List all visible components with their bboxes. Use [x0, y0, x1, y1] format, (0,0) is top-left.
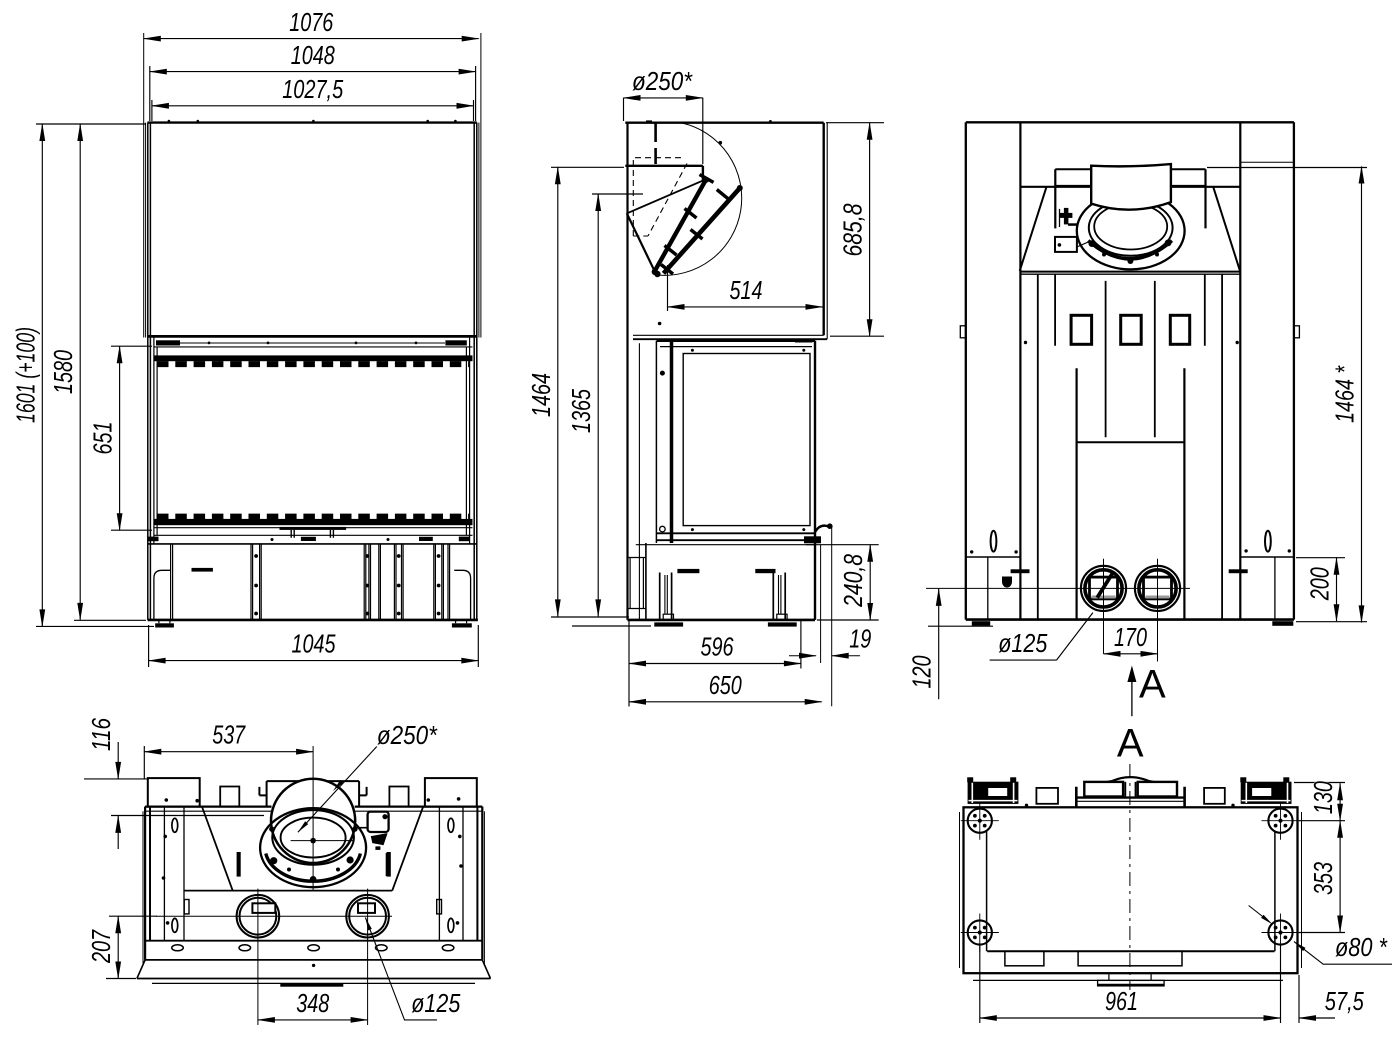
svg-text:116: 116: [86, 718, 116, 751]
svg-text:1464 *: 1464 *: [1330, 365, 1360, 423]
svg-text:514: 514: [730, 275, 763, 305]
svg-text:240,8: 240,8: [838, 553, 868, 607]
svg-text:200: 200: [1305, 567, 1335, 601]
svg-text:ø80 *: ø80 *: [1335, 932, 1388, 962]
svg-text:961: 961: [1105, 986, 1138, 1016]
svg-text:ø250*: ø250*: [377, 720, 438, 750]
svg-text:ø125: ø125: [411, 988, 460, 1018]
svg-text:1045: 1045: [292, 629, 336, 659]
svg-text:57,5: 57,5: [1325, 986, 1364, 1016]
svg-text:120: 120: [907, 655, 937, 688]
svg-text:A: A: [1117, 722, 1144, 766]
svg-text:1076: 1076: [289, 7, 333, 37]
svg-text:ø125: ø125: [998, 628, 1047, 658]
svg-text:596: 596: [701, 632, 734, 662]
svg-text:685,8: 685,8: [838, 203, 868, 256]
svg-text:1365: 1365: [566, 389, 596, 433]
svg-text:170: 170: [1114, 622, 1147, 652]
svg-text:19: 19: [849, 624, 871, 654]
svg-text:537: 537: [212, 720, 246, 750]
svg-text:1601 (+100): 1601 (+100): [10, 327, 40, 423]
svg-text:1464: 1464: [526, 373, 556, 417]
svg-text:348: 348: [296, 988, 329, 1018]
svg-text:353: 353: [1308, 862, 1338, 895]
svg-text:1048: 1048: [291, 40, 335, 70]
svg-text:A: A: [1139, 663, 1166, 707]
svg-text:130: 130: [1308, 781, 1338, 814]
svg-text:1027,5: 1027,5: [282, 74, 343, 104]
svg-text:650: 650: [709, 670, 742, 700]
svg-text:ø250*: ø250*: [632, 66, 693, 96]
svg-text:1580: 1580: [48, 350, 78, 394]
svg-text:651: 651: [88, 422, 118, 455]
svg-text:207: 207: [86, 929, 116, 964]
